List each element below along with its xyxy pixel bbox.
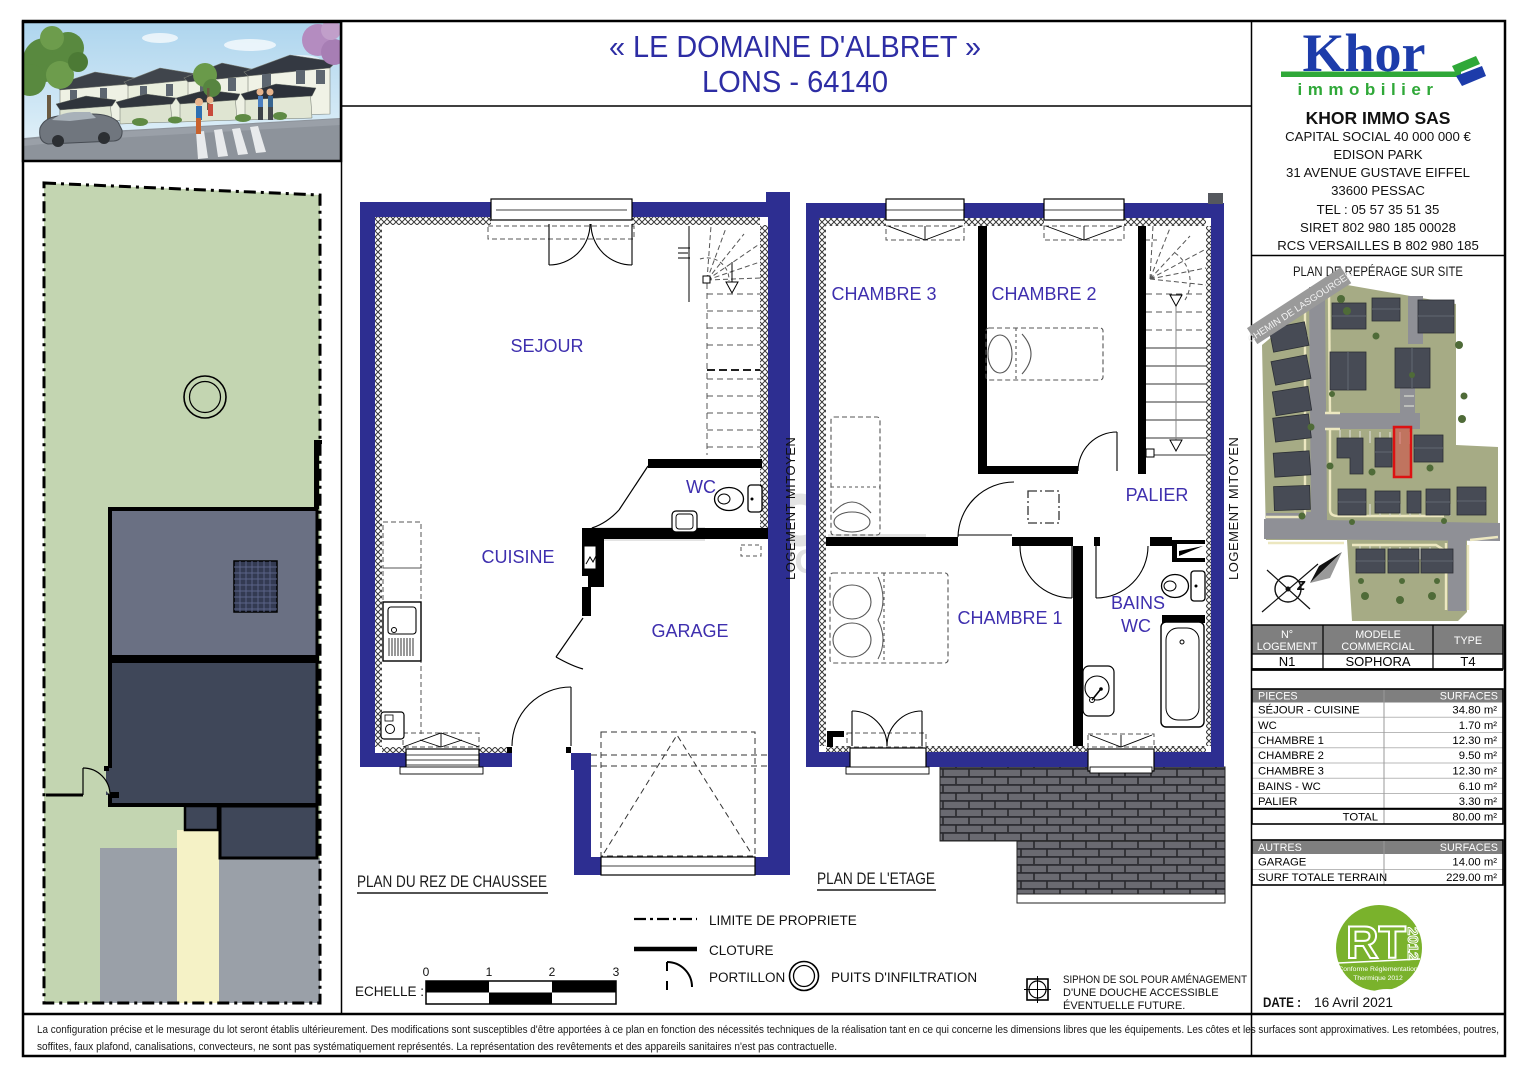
svg-text:33600 PESSAC: 33600 PESSAC xyxy=(1331,183,1425,198)
svg-text:COMMERCIAL: COMMERCIAL xyxy=(1341,641,1414,653)
svg-text:PLAN DE REPÉRAGE SUR SITE: PLAN DE REPÉRAGE SUR SITE xyxy=(1293,263,1463,279)
svg-text:229.00 m²: 229.00 m² xyxy=(1446,872,1497,884)
svg-text:LOGEMENT: LOGEMENT xyxy=(1257,641,1318,653)
svg-text:N1: N1 xyxy=(1279,654,1296,669)
svg-text:14.00 m²: 14.00 m² xyxy=(1452,857,1497,869)
svg-text:CHAMBRE 1: CHAMBRE 1 xyxy=(1258,735,1324,747)
svg-text:WC: WC xyxy=(686,477,716,497)
svg-text:GARAGE: GARAGE xyxy=(651,621,728,641)
svg-text:SEJOUR: SEJOUR xyxy=(510,336,583,356)
svg-text:MODELE: MODELE xyxy=(1355,629,1401,641)
svg-text:CHAMBRE 3: CHAMBRE 3 xyxy=(831,284,936,304)
svg-text:La configuration précise et le: La configuration précise et le mesurage … xyxy=(37,1024,1499,1036)
svg-text:SIRET 802 980 185 00028: SIRET 802 980 185 00028 xyxy=(1300,220,1456,235)
svg-text:CHAMBRE 2: CHAMBRE 2 xyxy=(991,284,1096,304)
svg-text:LOGEMENT MITOYEN: LOGEMENT MITOYEN xyxy=(783,437,798,580)
svg-text:EDISON PARK: EDISON PARK xyxy=(1333,147,1422,162)
svg-text:RCS VERSAILLES B 802 980 185: RCS VERSAILLES B 802 980 185 xyxy=(1277,238,1479,253)
svg-text:16 Avril 2021: 16 Avril 2021 xyxy=(1314,995,1393,1010)
svg-text:CAPITAL SOCIAL 40 000 000 €: CAPITAL SOCIAL 40 000 000 € xyxy=(1285,129,1471,144)
svg-text:WC: WC xyxy=(1121,616,1151,636)
svg-text:LIMITE DE PROPRIETE: LIMITE DE PROPRIETE xyxy=(709,913,857,928)
svg-text:SURFACES: SURFACES xyxy=(1440,691,1498,703)
svg-text:CHAMBRE 1: CHAMBRE 1 xyxy=(957,608,1062,628)
svg-text:TEL : 05 57 35 51 35: TEL : 05 57 35 51 35 xyxy=(1317,202,1440,217)
svg-text:Conforme Réglementation: Conforme Réglementation xyxy=(1338,966,1418,973)
svg-text:PORTILLON: PORTILLON xyxy=(709,970,785,985)
svg-text:PLAN DU REZ DE CHAUSSEE: PLAN DU REZ DE CHAUSSEE xyxy=(357,873,547,891)
svg-text:2: 2 xyxy=(549,965,556,979)
svg-text:1: 1 xyxy=(486,965,493,979)
svg-text:3: 3 xyxy=(613,965,620,979)
svg-text:N°: N° xyxy=(1281,629,1293,641)
svg-text:CUISINE: CUISINE xyxy=(481,547,554,567)
svg-text:TYPE: TYPE xyxy=(1454,635,1482,647)
svg-text:PALIER: PALIER xyxy=(1126,485,1189,505)
svg-text:SIPHON DE SOL POUR AMÉNAGEMENT: SIPHON DE SOL POUR AMÉNAGEMENT xyxy=(1063,973,1247,986)
svg-text:ECHELLE :: ECHELLE : xyxy=(355,984,424,999)
svg-text:GARAGE: GARAGE xyxy=(1258,857,1307,869)
svg-text:31 AVENUE GUSTAVE EIFFEL: 31 AVENUE GUSTAVE EIFFEL xyxy=(1286,165,1470,180)
svg-text:PUITS D'INFILTRATION: PUITS D'INFILTRATION xyxy=(831,970,977,985)
svg-text:6.10 m²: 6.10 m² xyxy=(1459,781,1498,793)
svg-text:9.50 m²: 9.50 m² xyxy=(1459,750,1498,762)
svg-text:SOPHORA: SOPHORA xyxy=(1345,654,1410,669)
svg-text:CHAMBRE 3: CHAMBRE 3 xyxy=(1258,766,1324,778)
svg-text:immobilier: immobilier xyxy=(1298,80,1439,99)
svg-text:34.80 m²: 34.80 m² xyxy=(1452,705,1497,717)
svg-text:BAINS - WC: BAINS - WC xyxy=(1258,781,1321,793)
svg-text:BAINS: BAINS xyxy=(1111,593,1165,613)
svg-text:LONS - 64140: LONS - 64140 xyxy=(702,64,888,99)
svg-text:SURF TOTALE TERRAIN: SURF TOTALE TERRAIN xyxy=(1258,872,1387,884)
svg-text:D'UNE DOUCHE ACCESSIBLE: D'UNE DOUCHE ACCESSIBLE xyxy=(1063,987,1219,999)
svg-text:LOGEMENT MITOYEN: LOGEMENT MITOYEN xyxy=(1226,437,1241,580)
svg-text:3.30 m²: 3.30 m² xyxy=(1459,796,1498,808)
svg-text:WC: WC xyxy=(1258,720,1277,732)
svg-text:PLAN DE L'ETAGE: PLAN DE L'ETAGE xyxy=(817,870,935,888)
svg-text:« LE DOMAINE D'ALBRET »: « LE DOMAINE D'ALBRET » xyxy=(609,29,981,64)
svg-text:CLOTURE: CLOTURE xyxy=(709,943,774,958)
svg-text:Thermique 2012: Thermique 2012 xyxy=(1353,975,1403,982)
svg-text:12.30 m²: 12.30 m² xyxy=(1452,766,1497,778)
svg-text:2012: 2012 xyxy=(1404,927,1421,960)
svg-text:TOTAL: TOTAL xyxy=(1343,812,1378,824)
svg-text:KHOR IMMO SAS: KHOR IMMO SAS xyxy=(1306,108,1451,128)
svg-text:1.70 m²: 1.70 m² xyxy=(1459,720,1498,732)
svg-text:T4: T4 xyxy=(1460,654,1475,669)
svg-text:soffites, faux plafond, canali: soffites, faux plafond, canalisations, c… xyxy=(37,1041,837,1053)
svg-text:CHAMBRE 2: CHAMBRE 2 xyxy=(1258,750,1324,762)
svg-text:z: z xyxy=(1296,575,1306,594)
svg-text:SURFACES: SURFACES xyxy=(1440,842,1498,854)
svg-text:ÉVENTUELLE FUTURE.: ÉVENTUELLE FUTURE. xyxy=(1063,999,1185,1012)
svg-text:PALIER: PALIER xyxy=(1258,796,1297,808)
svg-text:12.30 m²: 12.30 m² xyxy=(1452,735,1497,747)
svg-text:AUTRES: AUTRES xyxy=(1258,842,1302,854)
svg-text:0: 0 xyxy=(423,965,430,979)
svg-text:SÉJOUR - CUISINE: SÉJOUR - CUISINE xyxy=(1258,704,1360,717)
svg-text:PIECES: PIECES xyxy=(1258,691,1298,703)
svg-text:DATE :: DATE : xyxy=(1263,995,1301,1010)
svg-text:80.00 m²: 80.00 m² xyxy=(1452,812,1497,824)
